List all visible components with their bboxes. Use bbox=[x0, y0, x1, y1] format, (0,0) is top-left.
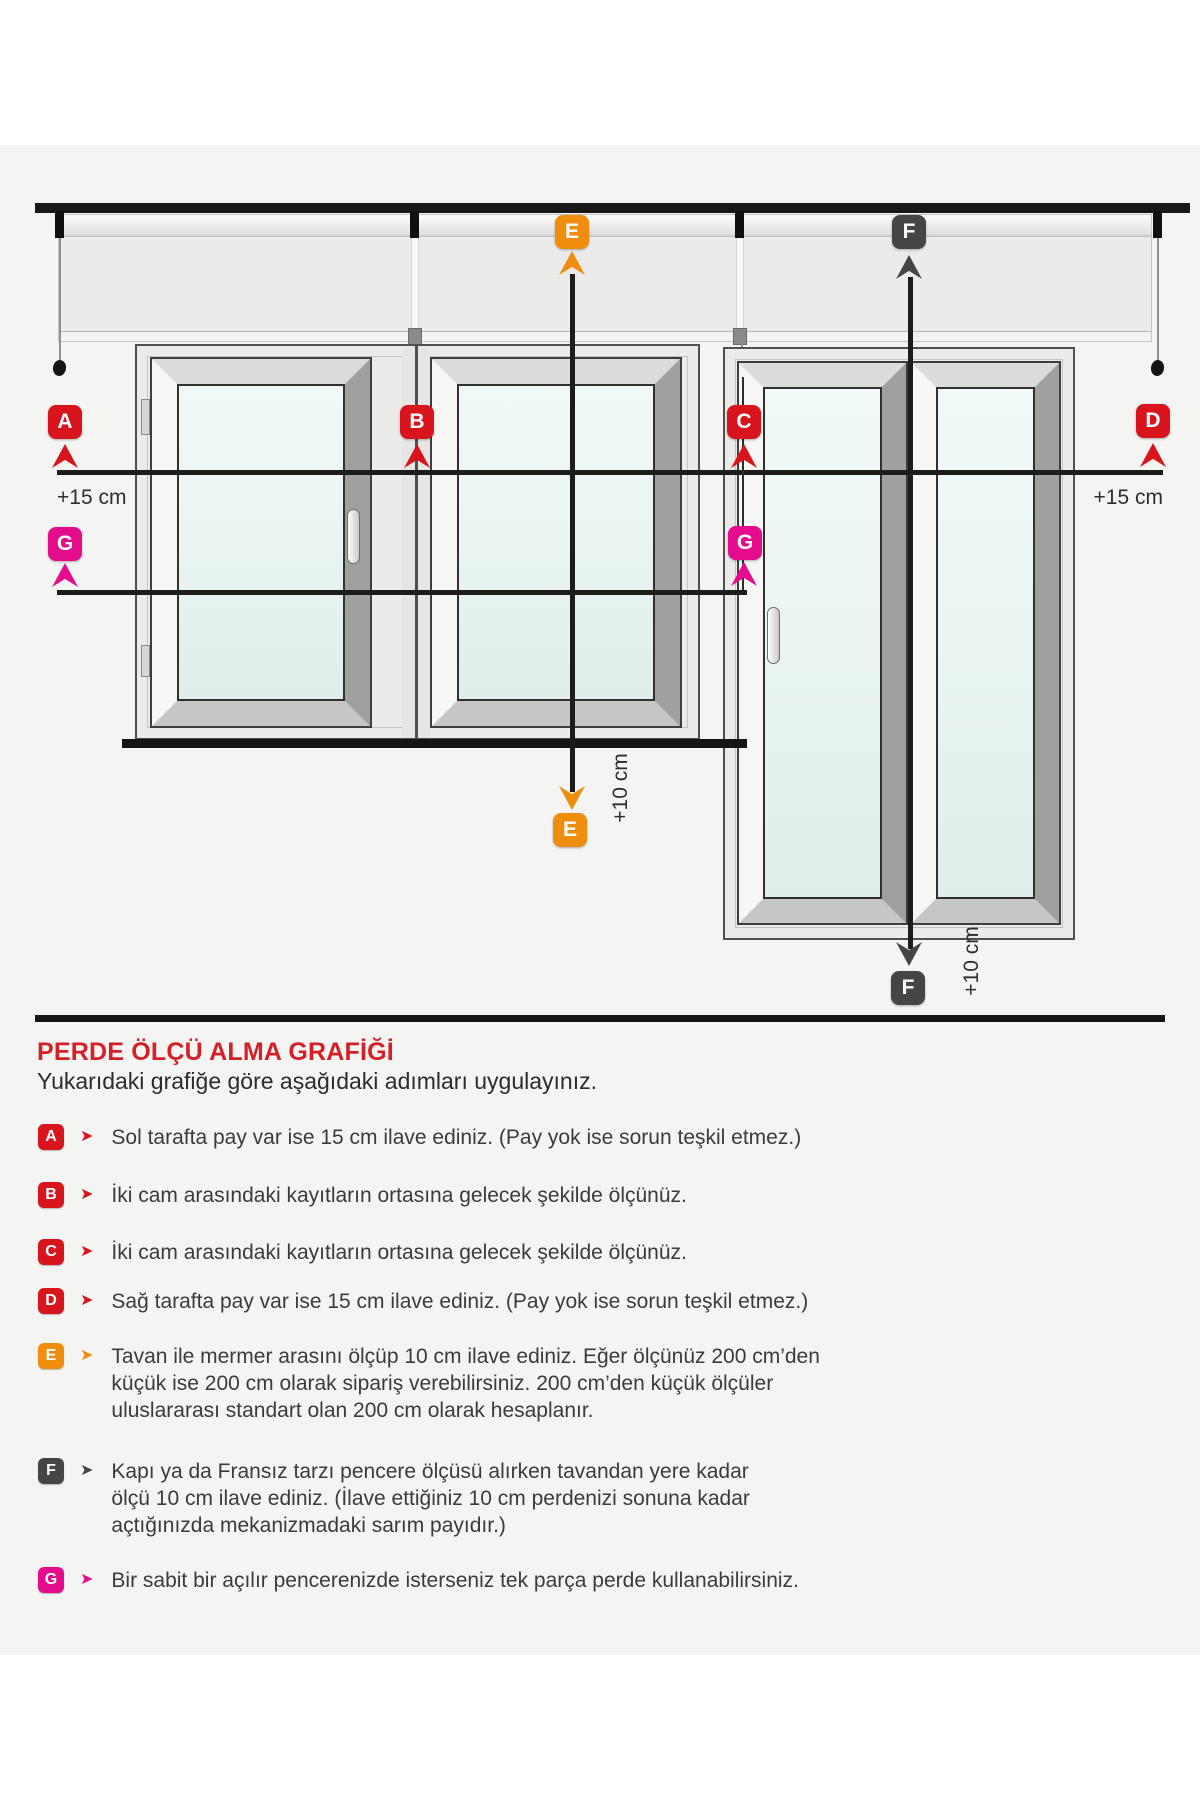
arrow-right-icon: ➤ bbox=[80, 1570, 93, 1590]
window-sill bbox=[122, 739, 747, 748]
page-title: PERDE ÖLÇÜ ALMA GRAFİĞİ bbox=[37, 1038, 394, 1067]
f-measure-line bbox=[908, 277, 913, 949]
width-measure-line bbox=[57, 470, 1163, 475]
plus-10cm-f-label: +10 cm bbox=[960, 911, 982, 1011]
marker-c-badge: C bbox=[727, 405, 761, 439]
window-glass bbox=[936, 387, 1035, 899]
pull-cord-right bbox=[1157, 238, 1159, 364]
legend-item-a: A➤Sol tarafta pay var ise 15 cm ilave ed… bbox=[38, 1124, 1158, 1151]
marker-e-bottom-badge: E bbox=[553, 813, 587, 847]
rail-bracket-left bbox=[55, 211, 64, 238]
page-subtitle: Yukarıdaki grafiğe göre aşağıdaki adımla… bbox=[37, 1068, 597, 1095]
legend-text: İki cam arasındaki kayıtların ortasına g… bbox=[111, 1239, 686, 1266]
window-handle-icon bbox=[347, 509, 360, 564]
arrow-right-icon: ➤ bbox=[80, 1291, 93, 1311]
legend-item-g: G➤Bir sabit bir açılır pencerenizde iste… bbox=[38, 1567, 1158, 1594]
legend-badge: F bbox=[38, 1458, 64, 1484]
marker-f-top-badge: F bbox=[892, 215, 926, 249]
g-measure-line bbox=[57, 590, 747, 595]
legend-badge: D bbox=[38, 1288, 64, 1314]
legend-badge: G bbox=[38, 1567, 64, 1593]
tall-window-sash-left bbox=[737, 361, 908, 925]
legend-badge: E bbox=[38, 1343, 64, 1369]
legend-badge: B bbox=[38, 1182, 64, 1208]
legend-text: Sağ tarafta pay var ise 15 cm ilave edin… bbox=[111, 1288, 808, 1315]
marker-f-bottom-badge: F bbox=[891, 971, 925, 1005]
legend-text: Sol tarafta pay var ise 15 cm ilave edin… bbox=[111, 1124, 801, 1151]
arrow-right-icon: ➤ bbox=[80, 1185, 93, 1205]
curtain-measurement-page: A B C D E E F F G G +15 cm +15 cm +10 cm… bbox=[0, 0, 1200, 1800]
window-glass bbox=[763, 387, 882, 899]
curtain-valance bbox=[58, 214, 1152, 342]
marker-a-badge: A bbox=[48, 405, 82, 439]
legend-item-e: E➤Tavan ile mermer arasını ölçüp 10 cm i… bbox=[38, 1343, 1158, 1424]
valance-bottom-lip bbox=[59, 331, 1151, 341]
tall-window-handle-icon bbox=[767, 607, 780, 664]
plus-15cm-right-label: +15 cm bbox=[1053, 486, 1163, 510]
legend-item-c: C➤İki cam arasındaki kayıtların ortasına… bbox=[38, 1239, 1158, 1266]
window-glass bbox=[177, 384, 345, 701]
valance-clip-right bbox=[733, 328, 747, 345]
arrow-right-icon: ➤ bbox=[80, 1461, 93, 1481]
e-measure-line bbox=[570, 274, 575, 792]
legend-badge: A bbox=[38, 1124, 64, 1150]
ceiling-rail bbox=[35, 203, 1190, 213]
marker-e-top-badge: E bbox=[555, 215, 589, 249]
rail-bracket-mid-left bbox=[410, 211, 419, 238]
valance-clip-left bbox=[408, 328, 422, 345]
window-hinge-bottom bbox=[141, 645, 150, 677]
rail-bracket-mid-right bbox=[735, 211, 744, 238]
legend-text: Tavan ile mermer arasını ölçüp 10 cm ila… bbox=[111, 1343, 820, 1424]
marker-b-badge: B bbox=[400, 405, 434, 439]
left-window-sash-left bbox=[150, 357, 372, 728]
marker-g-left-badge: G bbox=[48, 527, 82, 561]
window-glass bbox=[457, 384, 655, 701]
marker-g-right-badge: G bbox=[728, 526, 762, 560]
legend-text: İki cam arasındaki kayıtların ortasına g… bbox=[111, 1182, 686, 1209]
legend-badge: C bbox=[38, 1239, 64, 1265]
legend-item-f: F➤Kapı ya da Fransız tarzı pencere ölçüs… bbox=[38, 1458, 1158, 1539]
plus-15cm-left-label: +15 cm bbox=[57, 486, 126, 510]
left-window-sash-right bbox=[430, 357, 682, 728]
tall-window-sash-right bbox=[910, 361, 1061, 925]
plus-10cm-e-label: +10 cm bbox=[609, 738, 631, 838]
window-hinge-top bbox=[141, 399, 150, 435]
rail-bracket-right bbox=[1153, 211, 1162, 238]
section-divider bbox=[35, 1015, 1165, 1022]
arrow-right-icon: ➤ bbox=[80, 1242, 93, 1262]
pull-cord-left bbox=[59, 238, 61, 364]
arrow-right-icon: ➤ bbox=[80, 1346, 93, 1366]
valance-mechanism-strip bbox=[59, 215, 1151, 237]
marker-d-badge: D bbox=[1136, 404, 1170, 438]
legend-item-d: D➤Sağ tarafta pay var ise 15 cm ilave ed… bbox=[38, 1288, 1158, 1315]
arrow-right-icon: ➤ bbox=[80, 1127, 93, 1147]
legend-item-b: B➤İki cam arasındaki kayıtların ortasına… bbox=[38, 1182, 1158, 1209]
legend-text: Kapı ya da Fransız tarzı pencere ölçüsü … bbox=[111, 1458, 750, 1539]
legend-text: Bir sabit bir açılır pencerenizde isters… bbox=[111, 1567, 798, 1594]
